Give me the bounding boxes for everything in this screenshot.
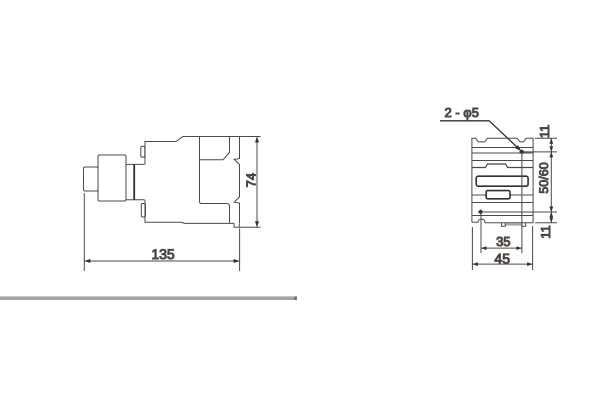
svg-text:45: 45 (494, 250, 510, 266)
svg-text:135: 135 (151, 246, 175, 262)
svg-text:50/60: 50/60 (537, 162, 551, 193)
svg-text:11: 11 (538, 225, 553, 239)
svg-text:35: 35 (496, 234, 510, 249)
svg-text:11: 11 (537, 125, 552, 139)
svg-text:2 - φ5: 2 - φ5 (445, 105, 479, 120)
svg-text:74: 74 (243, 173, 258, 187)
